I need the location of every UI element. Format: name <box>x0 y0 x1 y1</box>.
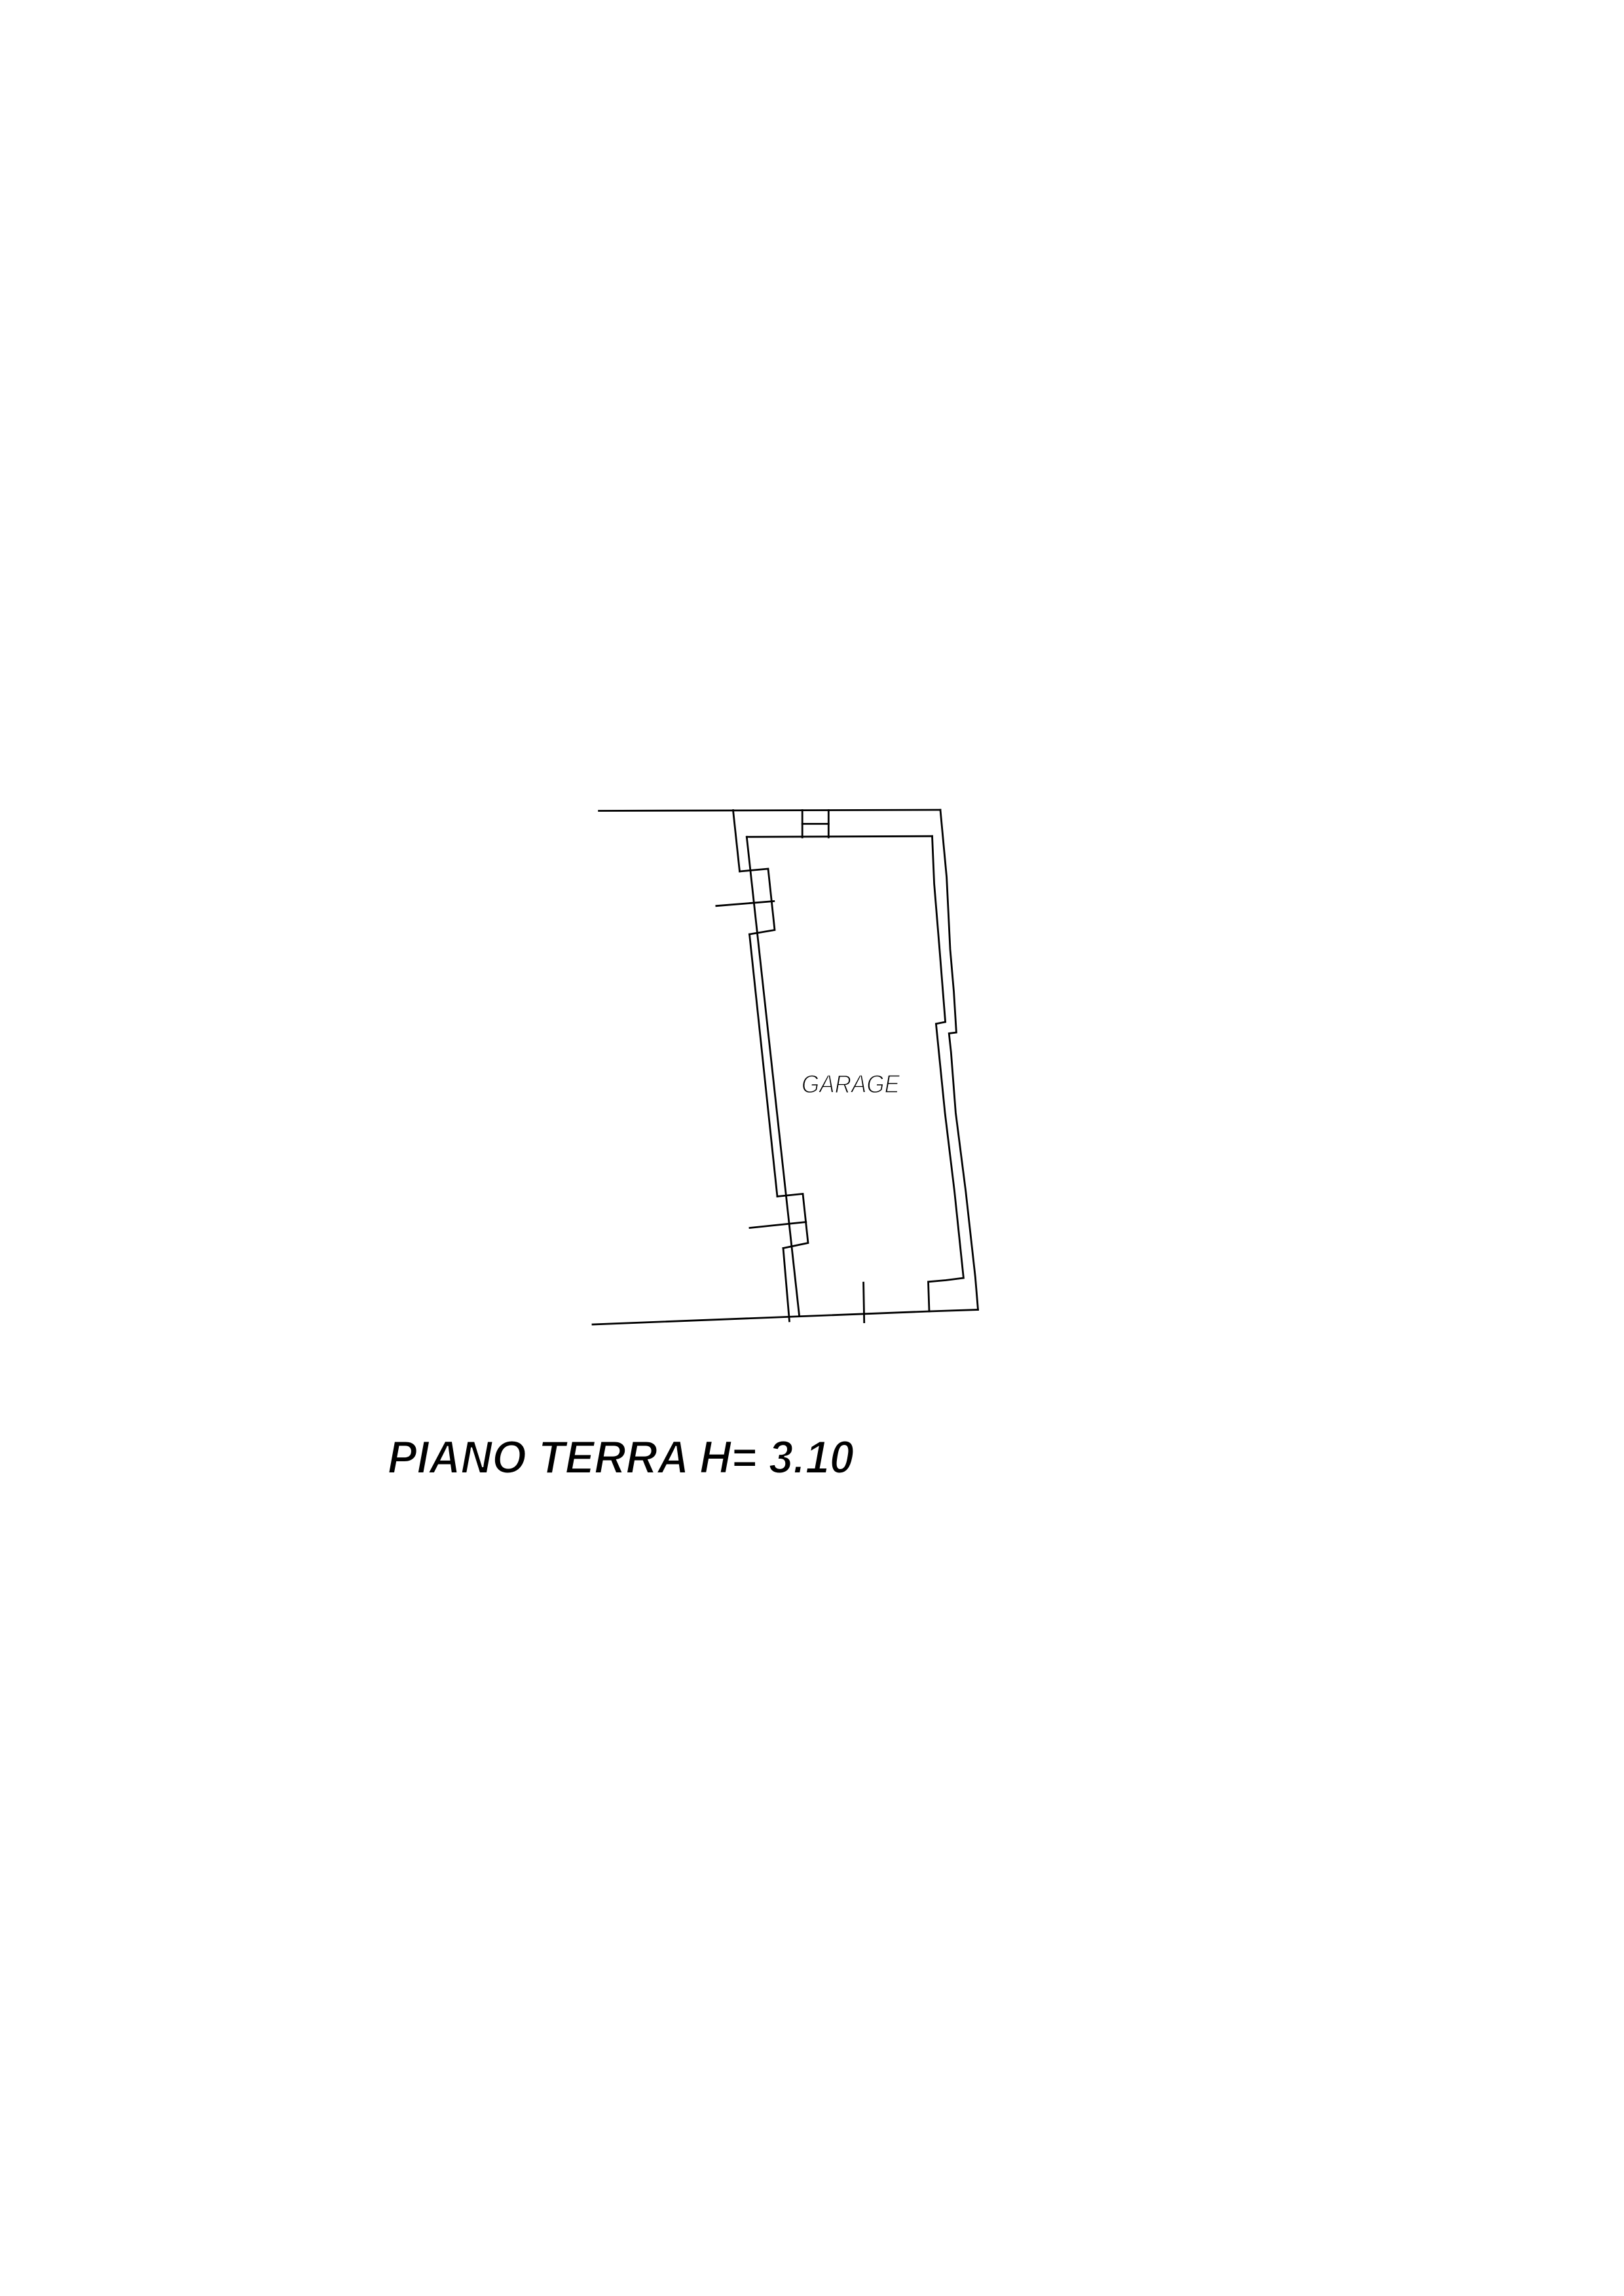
svg-text:PIANO TERRA H= 3.10: PIANO TERRA H= 3.10 <box>388 1431 854 1483</box>
svg-text:GARAGE: GARAGE <box>802 1070 900 1099</box>
